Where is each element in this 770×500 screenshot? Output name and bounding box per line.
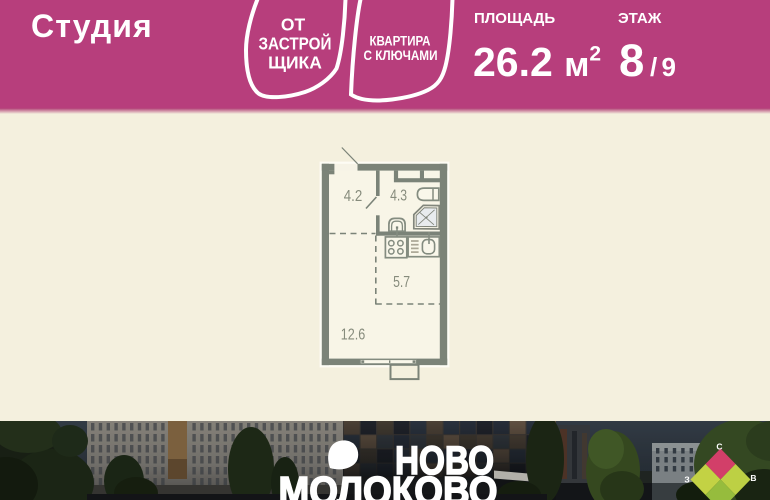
svg-text:В: В — [750, 473, 756, 483]
svg-text:КВАРТИРА: КВАРТИРА — [370, 34, 431, 49]
svg-text:4.3: 4.3 — [390, 188, 407, 205]
svg-text:12.6: 12.6 — [341, 327, 366, 344]
svg-text:МОЛОКОВО: МОЛОКОВО — [279, 470, 498, 500]
svg-text:С: С — [716, 442, 722, 452]
svg-text:ОТ: ОТ — [281, 15, 306, 35]
svg-text:5.7: 5.7 — [393, 274, 410, 291]
svg-text:ЩИКА: ЩИКА — [268, 53, 322, 73]
svg-text:ЗАСТРОЙ: ЗАСТРОЙ — [259, 33, 332, 54]
svg-text:З: З — [684, 475, 689, 485]
svg-text:С КЛЮЧАМИ: С КЛЮЧАМИ — [364, 48, 438, 63]
svg-text:4.2: 4.2 — [344, 188, 363, 205]
